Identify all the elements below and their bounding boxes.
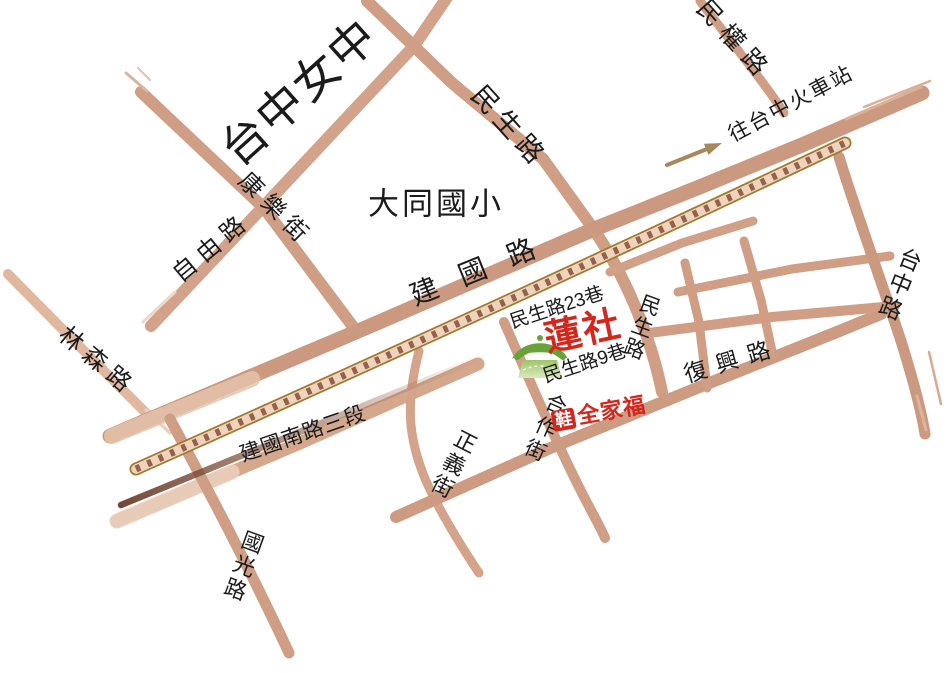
shoe-store-badge: 鞋 xyxy=(550,407,576,432)
taichung-hand-drawn-map: 台中女中 大同國小 建國路 民生路 民權路 往台中火車站 自由路 康樂街 林森路… xyxy=(0,0,952,673)
label-datong-elementary: 大同國小 xyxy=(368,189,504,220)
road-kangle-mark2 xyxy=(138,68,150,80)
road-taichung-fray1 xyxy=(929,352,941,404)
station-arrow-shaft xyxy=(667,149,707,165)
station-arrow-head-icon xyxy=(704,143,722,155)
road-h1 xyxy=(678,256,890,292)
